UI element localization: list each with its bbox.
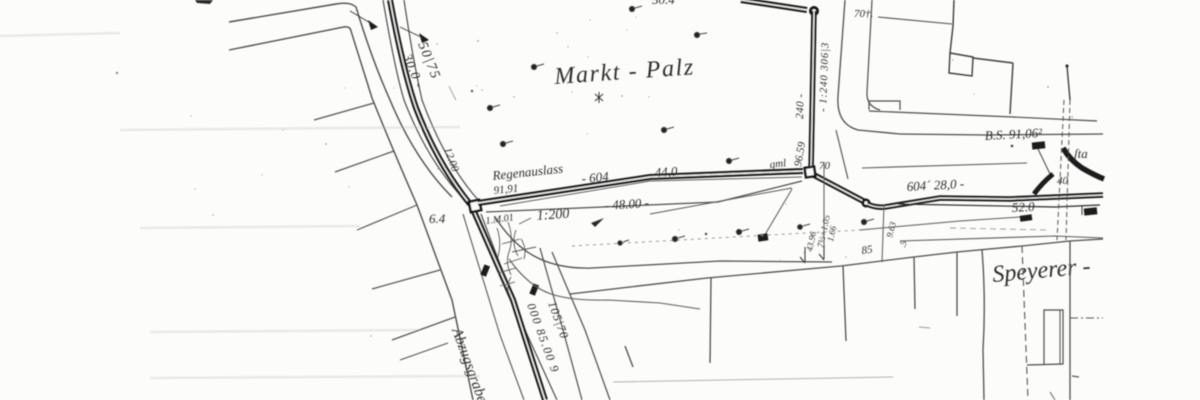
- svg-text:gml: gml: [769, 157, 787, 171]
- svg-text:52.0: 52.0: [1011, 199, 1035, 215]
- svg-text:- 604: - 604: [581, 169, 610, 186]
- svg-text:70†.: 70†.: [854, 8, 873, 20]
- svg-text:6.4: 6.4: [429, 211, 446, 226]
- svg-text:1:200: 1:200: [536, 207, 570, 224]
- svg-text:604´ 28,0 -: 604´ 28,0 -: [906, 176, 964, 194]
- svg-text:- 48.00 -: - 48.00 -: [604, 195, 649, 213]
- svg-text:240 -: 240 -: [794, 93, 807, 119]
- svg-text:ſta: ſta: [1074, 146, 1088, 161]
- svg-text:70: 70: [819, 160, 831, 172]
- svg-text:50.4: 50.4: [652, 0, 675, 7]
- svg-text:B.S. 91,06²: B.S. 91,06²: [984, 125, 1043, 143]
- svg-text:40: 40: [1057, 175, 1069, 187]
- svg-text:44,0: 44,0: [654, 163, 678, 180]
- svg-text:85: 85: [861, 243, 874, 256]
